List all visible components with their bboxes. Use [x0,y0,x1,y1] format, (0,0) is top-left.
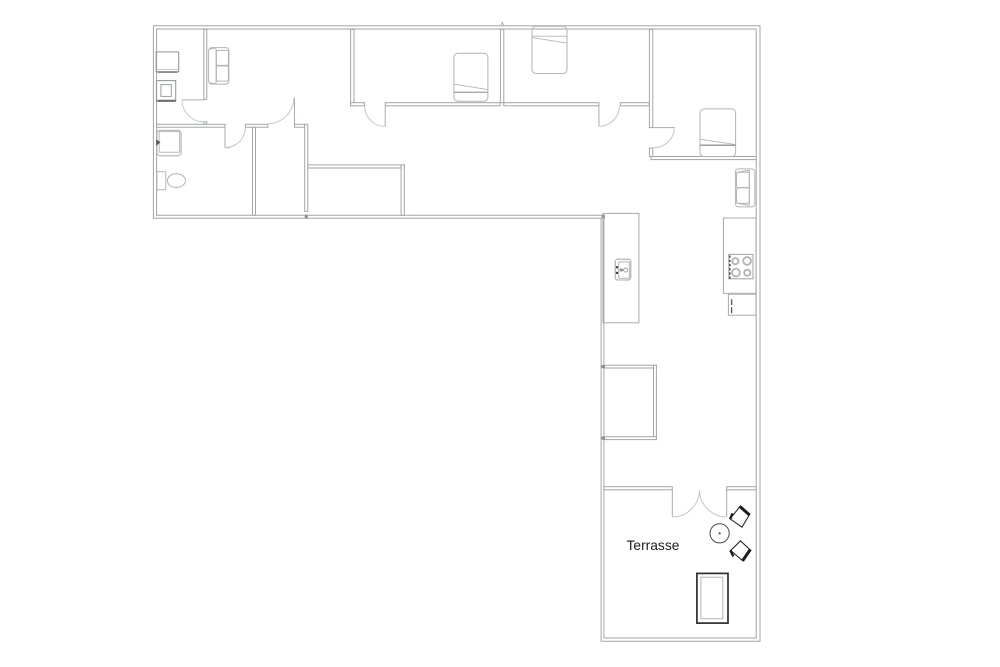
svg-text:Terrasse: Terrasse [627,538,680,553]
